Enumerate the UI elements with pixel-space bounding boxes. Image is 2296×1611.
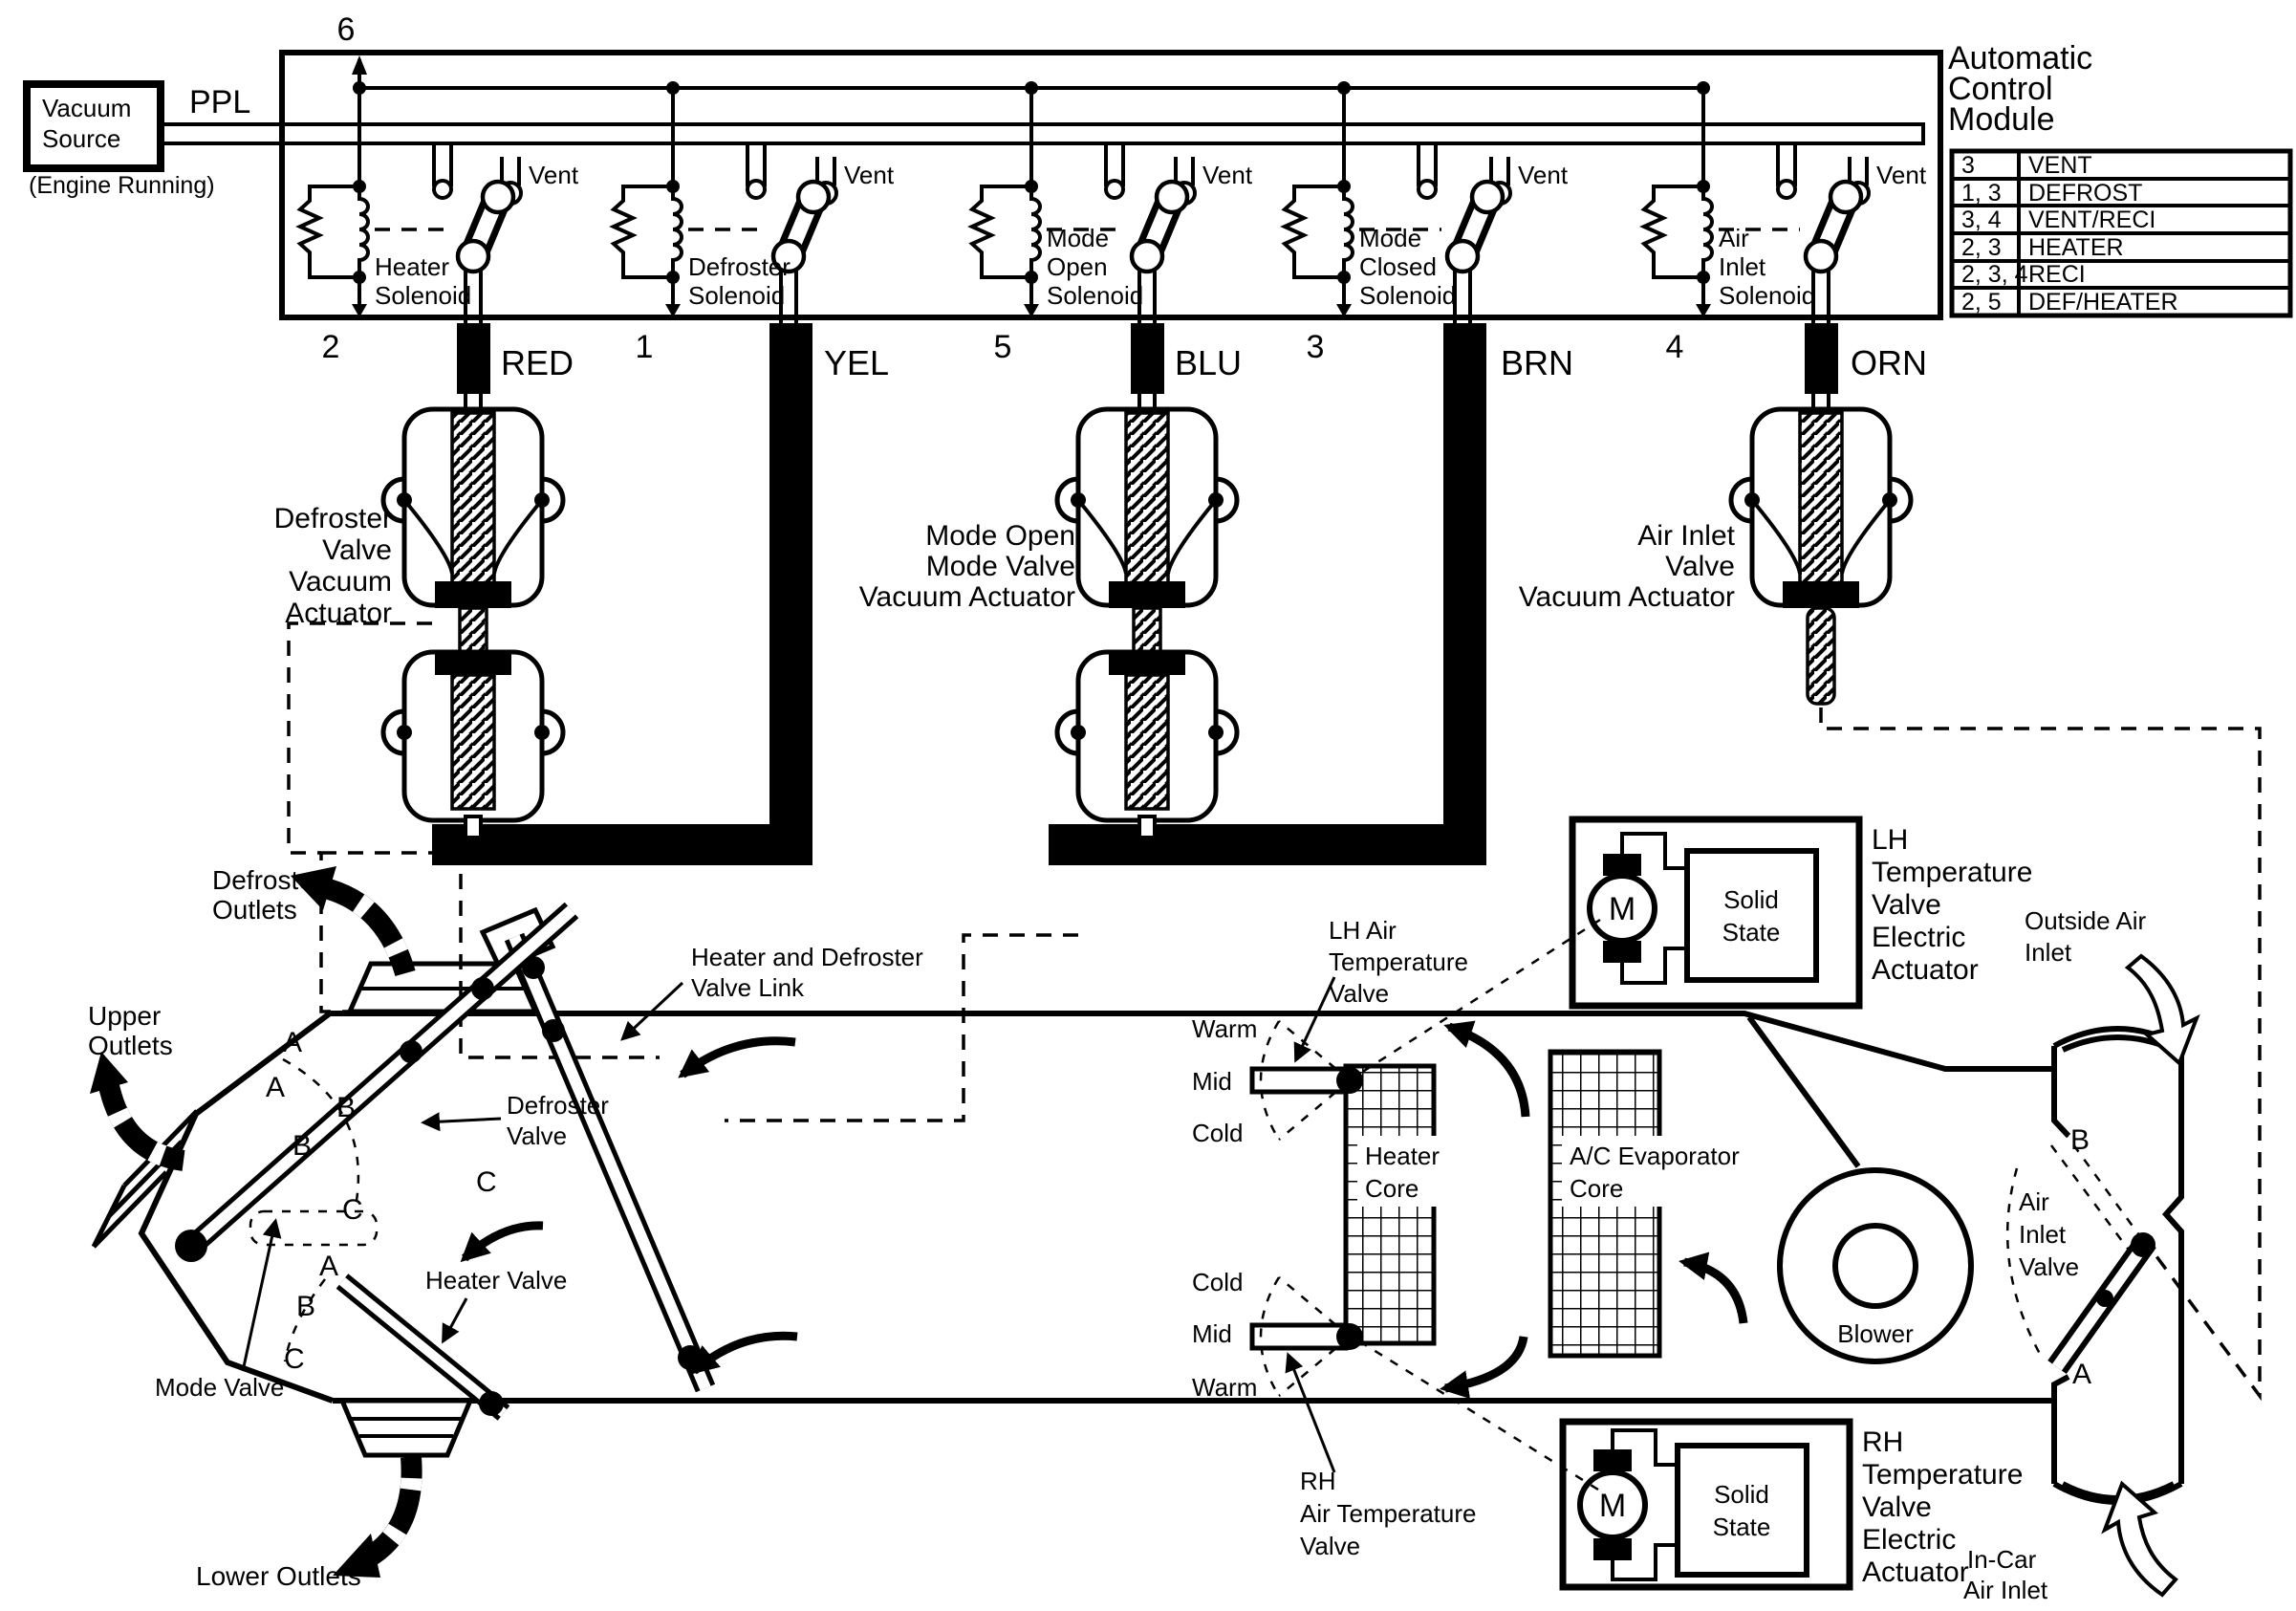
wire-color-label: YEL <box>824 343 889 382</box>
solid-state-label: State <box>1713 1513 1771 1541</box>
actuator-label: Vacuum Actuator <box>1519 581 1735 613</box>
table-pins: 2, 5 <box>1961 289 2002 316</box>
rh-actuator-label: RH <box>1862 1426 1903 1458</box>
table-mode: VENT <box>2028 152 2092 179</box>
air-inlet-valve-label: Air <box>2019 1187 2049 1216</box>
orn-hose <box>1805 323 1838 394</box>
actuator-label: Vacuum Actuator <box>859 581 1075 613</box>
actuator-label: Valve <box>322 534 392 566</box>
resistor <box>300 186 359 277</box>
brn-hose <box>1443 323 1486 865</box>
temp-cold: Cold <box>1192 1268 1243 1296</box>
rh-electric-actuator: M Solid State RH Temperature Valve Elect… <box>1361 1342 2023 1588</box>
solenoid-name: Defroster <box>688 252 791 281</box>
defroster-valve-label: Defroster <box>507 1091 609 1120</box>
lh-actuator-label: Valve <box>1872 889 1941 921</box>
lower-outlet-arrowhead <box>333 1534 380 1578</box>
solenoid-name: Solenoid <box>1359 281 1456 310</box>
solid-state-label: State <box>1722 918 1781 947</box>
blu-hose <box>1131 323 1164 394</box>
table-pins: 3 <box>1961 152 1975 179</box>
mode-valve-label: Mode Valve <box>155 1373 284 1402</box>
defroster-outlets-label: Outlets <box>212 895 297 925</box>
heater-core-label: Core <box>1365 1174 1419 1203</box>
lh-valve-label: Valve <box>1329 979 1389 1008</box>
air-inlet-valve-label: Valve <box>2019 1252 2079 1281</box>
module-title-table: Automatic Control Module 3VENT 1, 3DEFRO… <box>1948 40 2290 316</box>
table-pins: 1, 3 <box>1961 180 2002 207</box>
heater-core: Heater Core <box>1346 1066 1464 1343</box>
pin-number: 3 <box>1307 329 1325 365</box>
rh-actuator-label: Actuator <box>1862 1557 1969 1588</box>
coil <box>359 186 368 277</box>
evaporator-core: A/C Evaporator Core <box>1550 1052 1742 1356</box>
engine-running-note: (Engine Running) <box>29 172 215 199</box>
outside-air-inlet-label: Outside Air <box>2025 906 2147 935</box>
lh-actuator-label: Temperature <box>1872 857 2032 888</box>
lh-actuator-label: Actuator <box>1872 954 1979 986</box>
blower: Blower <box>1780 1170 1971 1361</box>
yel-hose-run <box>432 824 812 865</box>
solenoid-station-mode-open: Vent Mode Open Solenoid 5 BLU <box>972 144 1253 394</box>
vent-label: Vent <box>844 161 895 189</box>
vent-label: Vent <box>1202 161 1253 189</box>
upper-outlets-label: Upper <box>88 1001 161 1031</box>
actuator-label: Defroster <box>274 503 392 534</box>
outside-air-inlet-label: Inlet <box>2025 938 2072 967</box>
ppl-supply-lines <box>161 124 1923 143</box>
position-b: B <box>292 1130 312 1162</box>
outside-air-arrow <box>2128 956 2197 1063</box>
in-car-air-arrow <box>2105 1484 2176 1595</box>
solid-state-label: Solid <box>1723 885 1779 914</box>
vent-label: Vent <box>529 161 579 189</box>
vacuum-diagram-page: Vacuum Source (Engine Running) PPL 6 Ven… <box>0 0 2296 1611</box>
vent-label: Vent <box>1876 161 1927 189</box>
position-a: A <box>2072 1359 2091 1390</box>
in-car-air-inlet-label: In-Car <box>1967 1545 2037 1574</box>
link-label: Valve Link <box>691 973 805 1002</box>
temp-mid: Mid <box>1192 1319 1232 1348</box>
table-pins: 2, 3 <box>1961 234 2002 261</box>
position-c: C <box>342 1194 363 1226</box>
evap-core-label: Core <box>1570 1174 1623 1203</box>
pin-6-arrow <box>352 55 367 75</box>
lower-outlets-label: Lower Outlets <box>196 1561 361 1591</box>
solenoid-name: Solenoid <box>375 281 471 310</box>
pin-6-label: 6 <box>337 11 356 48</box>
air-inlet-valve-label: Inlet <box>2019 1220 2067 1249</box>
in-car-air-inlet-label: Air Inlet <box>1963 1576 2048 1604</box>
rh-actuator-label: Valve <box>1862 1491 1932 1523</box>
hvac-vacuum-diagram: Vacuum Source (Engine Running) PPL 6 Ven… <box>0 0 2296 1611</box>
solenoid-name: Mode <box>1359 224 1421 252</box>
defroster-vacuum-actuator: Defroster Valve Vacuum Actuator <box>274 392 563 853</box>
actuator-label: Vacuum <box>289 566 392 598</box>
lh-valve-label: LH Air <box>1329 916 1397 945</box>
actuator-label: Mode Valve <box>926 551 1075 582</box>
pin-number: 1 <box>636 329 654 365</box>
table-pins: 3, 4 <box>1961 207 2002 233</box>
wire-color-label: ORN <box>1851 343 1927 382</box>
temp-mid: Mid <box>1192 1067 1232 1096</box>
rh-valve-label: Air Temperature <box>1300 1499 1477 1528</box>
rh-valve-label: Valve <box>1300 1532 1360 1560</box>
pin-number: 5 <box>994 329 1012 365</box>
solenoid-name: Solenoid <box>1719 281 1815 310</box>
position-c: C <box>476 1166 497 1198</box>
vacuum-source-label-1: Vacuum <box>42 94 131 122</box>
red-hose <box>457 323 490 394</box>
rh-actuator-label: Electric <box>1862 1524 1956 1556</box>
solenoid-name: Mode <box>1047 224 1109 252</box>
solenoid-name: Solenoid <box>688 281 785 310</box>
table-mode: DEF/HEATER <box>2028 289 2178 316</box>
solenoid-station-heater: Vent Heater Solenoid 2 RED <box>300 144 579 394</box>
solid-state-label: Solid <box>1714 1480 1769 1509</box>
solenoid-station-air-inlet: Vent Air Inlet Solenoid 4 ORN <box>1644 144 1927 394</box>
table-mode: RECI <box>2028 261 2086 288</box>
position-c: C <box>284 1343 305 1375</box>
position-a: A <box>283 1027 302 1058</box>
vacuum-source-label-2: Source <box>42 124 120 153</box>
brn-hose-run <box>1049 824 1486 865</box>
wire-color-label: BRN <box>1501 343 1573 382</box>
yel-hose <box>769 323 812 865</box>
motor-m: M <box>1609 891 1635 927</box>
position-a: A <box>266 1072 285 1103</box>
pin-number: 4 <box>1666 329 1684 365</box>
table-pins: 2, 3, 4 <box>1961 261 2028 288</box>
temp-warm: Warm <box>1192 1014 1257 1043</box>
position-b: B <box>2070 1124 2090 1156</box>
actuator-label: Air Inlet <box>1637 520 1735 552</box>
solenoid-name: Closed <box>1359 252 1437 281</box>
heater-valve-label: Heater Valve <box>425 1266 567 1295</box>
motor-m: M <box>1599 1488 1626 1524</box>
evap-core-label: A/C Evaporator <box>1570 1142 1740 1170</box>
lh-actuator-label: Electric <box>1872 922 1965 953</box>
temp-cold: Cold <box>1192 1119 1243 1147</box>
actuator-label: Valve <box>1665 551 1735 582</box>
link-label: Heater and Defroster <box>691 943 923 971</box>
table-mode: DEFROST <box>2028 180 2142 207</box>
wire-color-label: RED <box>501 343 574 382</box>
pin-number: 2 <box>322 329 340 365</box>
ppl-wire-label: PPL <box>189 84 250 120</box>
solenoid-name: Air <box>1719 224 1749 252</box>
heater-core-label: Heater <box>1365 1142 1440 1170</box>
solenoid-name: Inlet <box>1719 252 1766 281</box>
position-a: A <box>319 1251 338 1282</box>
module-title-3: Module <box>1948 101 2055 138</box>
actuator-label: Mode Open <box>925 520 1075 552</box>
vent-label: Vent <box>1518 161 1569 189</box>
solenoid-name: Open <box>1047 252 1108 281</box>
lh-valve-label: Temperature <box>1329 947 1468 976</box>
rh-actuator-label: Temperature <box>1862 1459 2023 1491</box>
solenoid-name: Heater <box>375 252 449 281</box>
position-b: B <box>336 1092 356 1123</box>
solenoid-name: Solenoid <box>1047 281 1143 310</box>
lh-actuator-label: LH <box>1872 824 1908 856</box>
air-inlet-tower: B A Air Inlet Valve Outside Air Inlet In… <box>1963 906 2197 1604</box>
rh-valve-label: RH <box>1300 1467 1336 1495</box>
table-mode: HEATER <box>2028 234 2124 261</box>
position-b: B <box>296 1291 315 1322</box>
wire-color-label: BLU <box>1175 343 1242 382</box>
table-mode: VENT/RECI <box>2028 207 2155 233</box>
blower-label: Blower <box>1837 1319 1914 1348</box>
temp-warm: Warm <box>1192 1373 1257 1402</box>
defroster-valve-label: Valve <box>507 1121 567 1150</box>
